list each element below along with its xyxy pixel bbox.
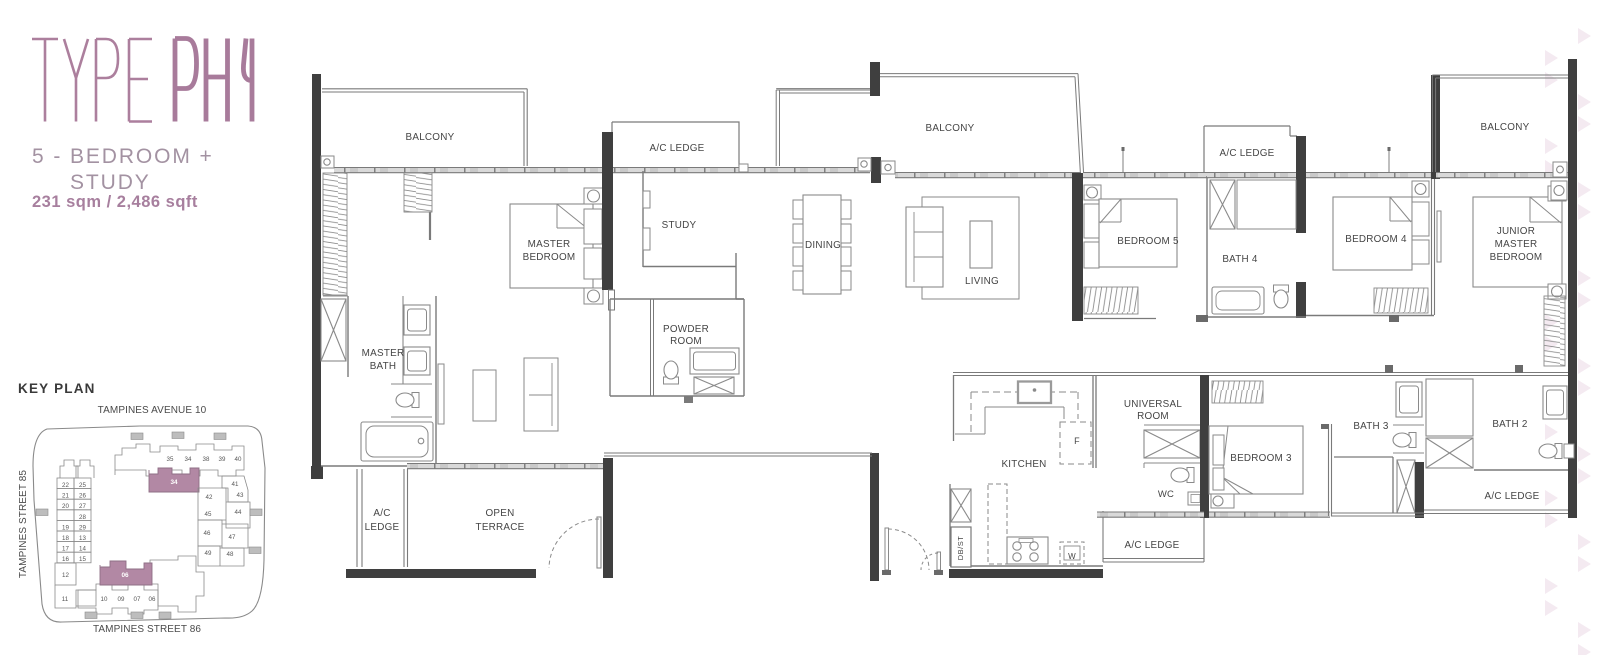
svg-text:43: 43 <box>237 492 244 499</box>
svg-text:BEDROOM: BEDROOM <box>523 252 576 263</box>
svg-text:46: 46 <box>204 530 211 537</box>
svg-text:45: 45 <box>205 511 212 518</box>
svg-text:POWDER: POWDER <box>663 324 709 335</box>
svg-text:LEDGE: LEDGE <box>365 522 400 533</box>
svg-text:BEDROOM 4: BEDROOM 4 <box>1345 234 1407 245</box>
svg-text:15: 15 <box>79 556 86 563</box>
svg-text:49: 49 <box>205 550 212 557</box>
svg-text:10: 10 <box>101 596 108 603</box>
svg-text:12: 12 <box>62 572 69 579</box>
svg-text:OPEN: OPEN <box>486 508 515 519</box>
svg-text:UNIVERSAL: UNIVERSAL <box>1124 399 1182 410</box>
svg-text:A/C LEDGE: A/C LEDGE <box>1220 148 1275 159</box>
svg-text:28: 28 <box>79 514 86 521</box>
svg-text:40: 40 <box>235 456 242 463</box>
svg-text:STUDY: STUDY <box>662 220 697 231</box>
svg-text:W: W <box>1068 552 1076 561</box>
svg-text:ROOM: ROOM <box>1137 411 1169 422</box>
svg-text:29: 29 <box>79 524 86 531</box>
svg-text:26: 26 <box>79 493 86 500</box>
svg-text:35: 35 <box>167 456 174 463</box>
svg-text:18: 18 <box>62 535 69 542</box>
svg-text:11: 11 <box>62 596 69 603</box>
svg-text:F: F <box>1074 436 1080 446</box>
svg-text:A/C LEDGE: A/C LEDGE <box>1485 491 1540 502</box>
svg-text:21: 21 <box>62 493 69 500</box>
svg-text:DB/ST: DB/ST <box>956 536 965 561</box>
svg-text:JUNIOR: JUNIOR <box>1497 226 1535 237</box>
svg-text:41: 41 <box>232 481 239 488</box>
svg-text:MASTER: MASTER <box>528 239 571 250</box>
svg-text:38: 38 <box>203 456 210 463</box>
svg-text:34: 34 <box>185 456 192 463</box>
svg-text:BALCONY: BALCONY <box>1481 122 1530 133</box>
svg-text:06: 06 <box>149 596 156 603</box>
svg-text:19: 19 <box>62 524 69 531</box>
svg-text:16: 16 <box>62 556 69 563</box>
svg-text:BATH: BATH <box>370 361 397 372</box>
svg-text:DINING: DINING <box>805 240 841 251</box>
svg-text:27: 27 <box>79 503 86 510</box>
svg-text:5 - BEDROOM +: 5 - BEDROOM + <box>32 145 214 168</box>
svg-text:LIVING: LIVING <box>965 276 999 287</box>
svg-text:34: 34 <box>170 479 178 486</box>
svg-text:BEDROOM 5: BEDROOM 5 <box>1117 236 1179 247</box>
svg-text:48: 48 <box>227 551 234 558</box>
svg-text:TAMPINES AVENUE 10: TAMPINES AVENUE 10 <box>98 405 207 416</box>
svg-text:39: 39 <box>219 456 226 463</box>
svg-text:A/C LEDGE: A/C LEDGE <box>1125 540 1180 551</box>
svg-text:BEDROOM: BEDROOM <box>1490 252 1543 263</box>
svg-text:22: 22 <box>62 482 69 489</box>
svg-text:WC: WC <box>1158 489 1174 500</box>
svg-text:TAMPINES STREET 86: TAMPINES STREET 86 <box>93 624 201 635</box>
svg-text:BEDROOM 3: BEDROOM 3 <box>1230 453 1292 464</box>
svg-text:KITCHEN: KITCHEN <box>1001 459 1046 470</box>
svg-text:09: 09 <box>118 596 125 603</box>
svg-text:13: 13 <box>79 535 86 542</box>
svg-text:STUDY: STUDY <box>70 171 151 194</box>
svg-text:ROOM: ROOM <box>670 336 702 347</box>
svg-text:BATH 2: BATH 2 <box>1492 419 1527 430</box>
svg-text:A/C: A/C <box>373 508 390 519</box>
svg-text:MASTER: MASTER <box>362 348 405 359</box>
svg-text:20: 20 <box>62 503 69 510</box>
svg-text:25: 25 <box>79 482 86 489</box>
svg-text:MASTER: MASTER <box>1495 239 1538 250</box>
svg-text:07: 07 <box>134 596 141 603</box>
svg-text:17: 17 <box>62 546 69 553</box>
svg-text:BALCONY: BALCONY <box>926 123 975 134</box>
svg-text:14: 14 <box>79 546 86 553</box>
svg-text:44: 44 <box>235 509 242 516</box>
svg-text:A/C LEDGE: A/C LEDGE <box>650 143 705 154</box>
svg-text:BATH 4: BATH 4 <box>1222 254 1258 265</box>
svg-text:BALCONY: BALCONY <box>406 132 455 143</box>
svg-text:231 sqm / 2,486 sqft: 231 sqm / 2,486 sqft <box>32 193 198 211</box>
svg-text:42: 42 <box>206 494 213 501</box>
svg-text:KEY PLAN: KEY PLAN <box>18 381 96 396</box>
svg-text:BATH 3: BATH 3 <box>1353 421 1389 432</box>
svg-text:47: 47 <box>229 534 236 541</box>
svg-text:TERRACE: TERRACE <box>476 522 525 533</box>
svg-text:TAMPINES STREET 85: TAMPINES STREET 85 <box>18 470 29 578</box>
svg-text:06: 06 <box>121 572 129 579</box>
